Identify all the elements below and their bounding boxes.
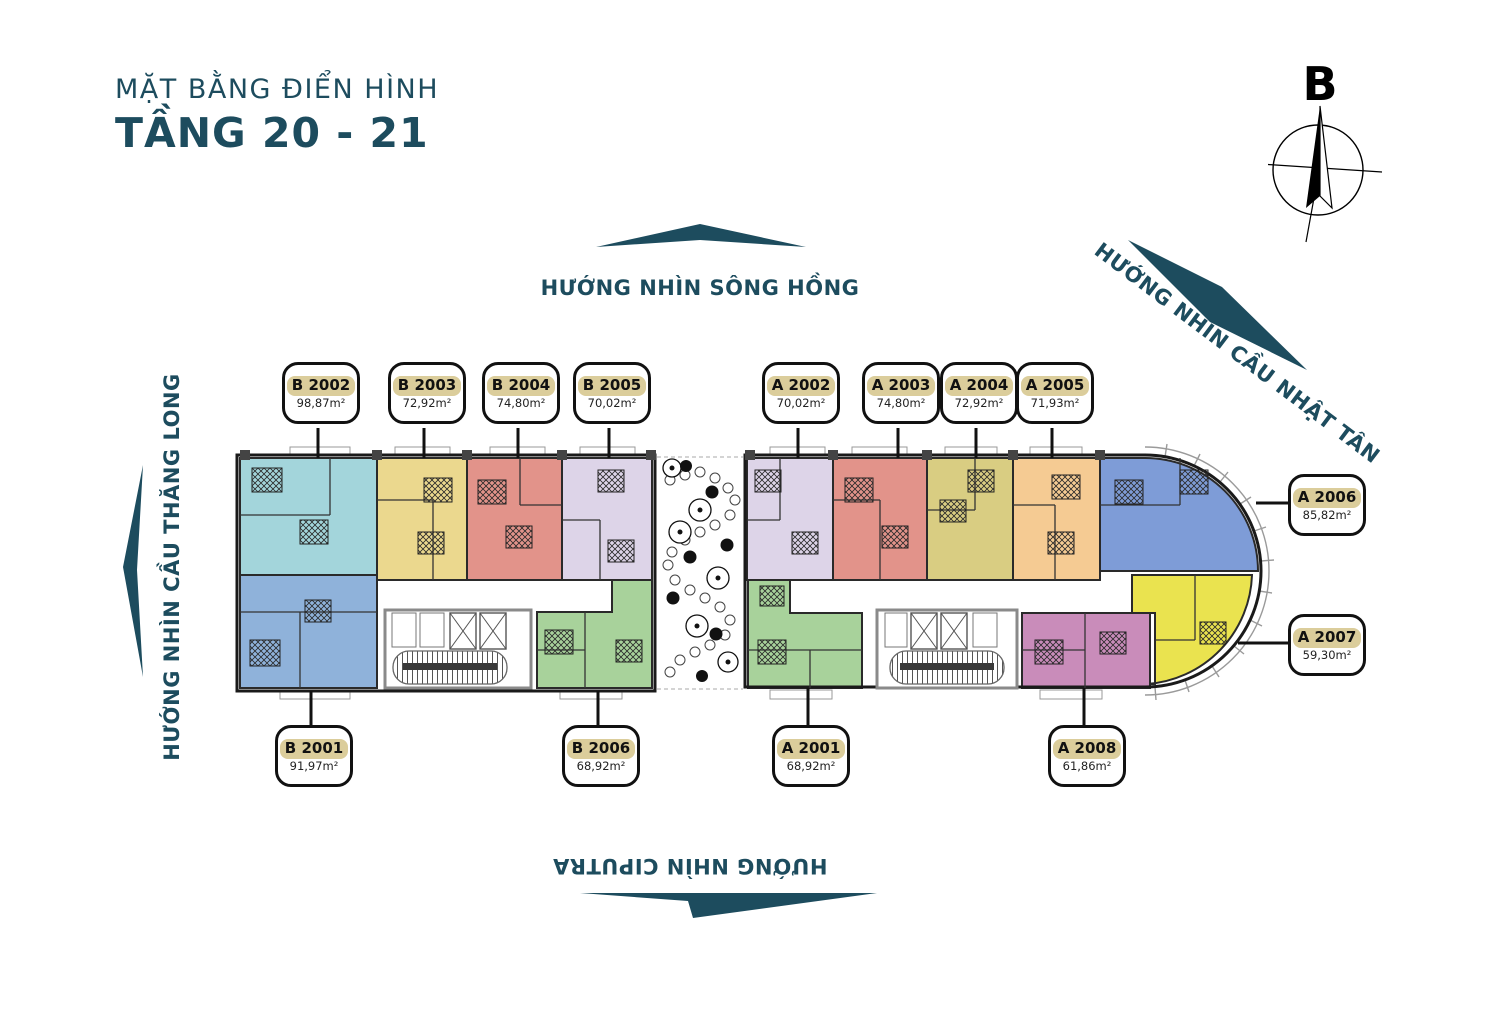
unit-id: B 2004 <box>487 376 555 396</box>
unit-id: B 2001 <box>280 739 348 759</box>
unit-area: 68,92m² <box>787 760 836 773</box>
unit-label-a2007[interactable]: A 2007 59,30m² <box>1288 614 1366 676</box>
unit-label-a2003[interactable]: A 2003 74,80m² <box>862 362 940 424</box>
floor-plan-page: B MẶT BẰNG ĐIỂN HÌNH TẦNG 20 - 21 HƯỚNG … <box>0 0 1499 1024</box>
unit-label-a2006[interactable]: A 2006 85,82m² <box>1288 474 1366 536</box>
unit-area: 74,80m² <box>497 397 546 410</box>
unit-area: 59,30m² <box>1303 649 1352 662</box>
arrow-bottom <box>580 893 877 918</box>
unit-area: 85,82m² <box>1303 509 1352 522</box>
unit-id: A 2003 <box>867 376 936 396</box>
core-right <box>877 610 1017 688</box>
unit-label-b2001[interactable]: B 2001 91,97m² <box>275 725 353 787</box>
unit-label-b2003[interactable]: B 2003 72,92m² <box>388 362 466 424</box>
unit-id: B 2003 <box>393 376 461 396</box>
arrow-top <box>596 224 806 247</box>
unit-area: 72,92m² <box>955 397 1004 410</box>
unit-label-b2005[interactable]: B 2005 70,02m² <box>573 362 651 424</box>
unit-label-b2002[interactable]: B 2002 98,87m² <box>282 362 360 424</box>
compass-north-letter: B <box>1302 57 1337 111</box>
unit-id: A 2002 <box>767 376 836 396</box>
arrow-northeast <box>1128 240 1307 370</box>
unit-area: 68,92m² <box>577 760 626 773</box>
compass-needle-dark <box>1306 106 1320 208</box>
unit-area: 70,02m² <box>777 397 826 410</box>
unit-label-a2002[interactable]: A 2002 70,02m² <box>762 362 840 424</box>
unit-region-b2004[interactable] <box>467 458 562 580</box>
unit-label-b2004[interactable]: B 2004 74,80m² <box>482 362 560 424</box>
unit-label-a2004[interactable]: A 2004 72,92m² <box>940 362 1018 424</box>
unit-area: 74,80m² <box>877 397 926 410</box>
core-left <box>385 610 531 688</box>
unit-id: A 2008 <box>1053 739 1122 759</box>
courtyard-garden <box>657 457 743 689</box>
unit-id: B 2005 <box>578 376 646 396</box>
unit-id: A 2001 <box>777 739 846 759</box>
compass: B <box>1268 48 1388 248</box>
unit-area: 70,02m² <box>588 397 637 410</box>
unit-id: B 2002 <box>287 376 355 396</box>
unit-area: 98,87m² <box>297 397 346 410</box>
unit-area: 71,93m² <box>1031 397 1080 410</box>
unit-label-a2008[interactable]: A 2008 61,86m² <box>1048 725 1126 787</box>
unit-label-a2005[interactable]: A 2005 71,93m² <box>1016 362 1094 424</box>
unit-label-b2006[interactable]: B 2006 68,92m² <box>562 725 640 787</box>
unit-area: 91,97m² <box>290 760 339 773</box>
unit-id: A 2007 <box>1293 628 1362 648</box>
unit-region-b2003[interactable] <box>377 458 467 580</box>
unit-id: B 2006 <box>567 739 635 759</box>
unit-id: A 2004 <box>945 376 1014 396</box>
unit-area: 61,86m² <box>1063 760 1112 773</box>
unit-area: 72,92m² <box>403 397 452 410</box>
unit-id: A 2006 <box>1293 488 1362 508</box>
unit-label-a2001[interactable]: A 2001 68,92m² <box>772 725 850 787</box>
arrow-left <box>123 465 143 677</box>
compass-needle-light <box>1320 106 1332 208</box>
unit-region-b2001[interactable] <box>240 575 377 688</box>
unit-region-a2006[interactable] <box>1100 458 1258 571</box>
unit-id: A 2005 <box>1021 376 1090 396</box>
